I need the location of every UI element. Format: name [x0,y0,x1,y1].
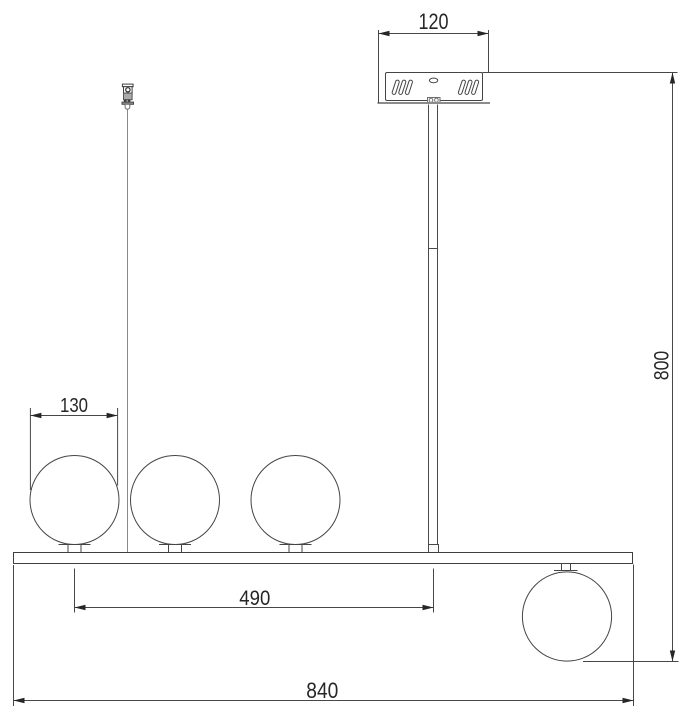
svg-text:130: 130 [60,395,88,417]
svg-text:120: 120 [419,9,449,34]
svg-text:840: 840 [306,678,338,703]
svg-text:800: 800 [651,351,674,381]
svg-text:490: 490 [239,587,270,610]
